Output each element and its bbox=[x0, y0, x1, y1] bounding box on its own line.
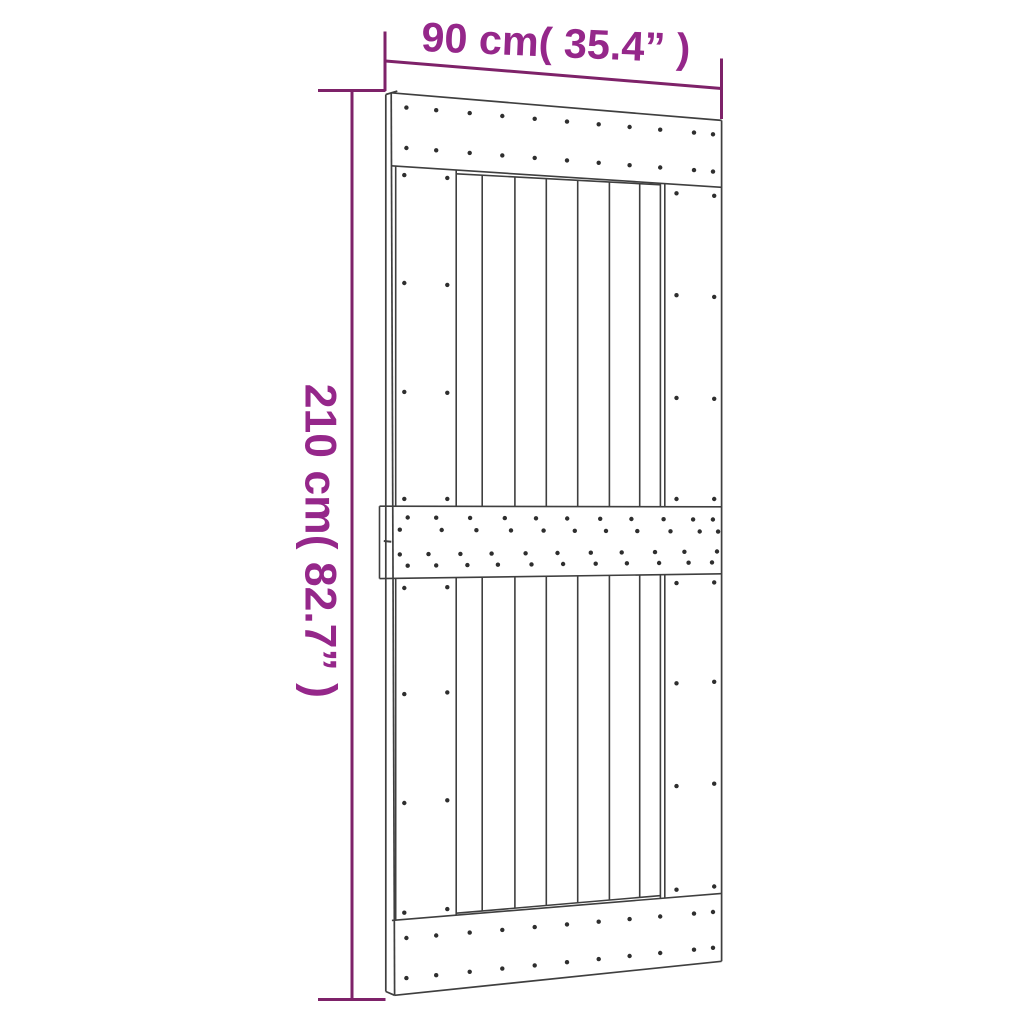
svg-text:210 cm( 82.7” ): 210 cm( 82.7” ) bbox=[296, 384, 345, 698]
